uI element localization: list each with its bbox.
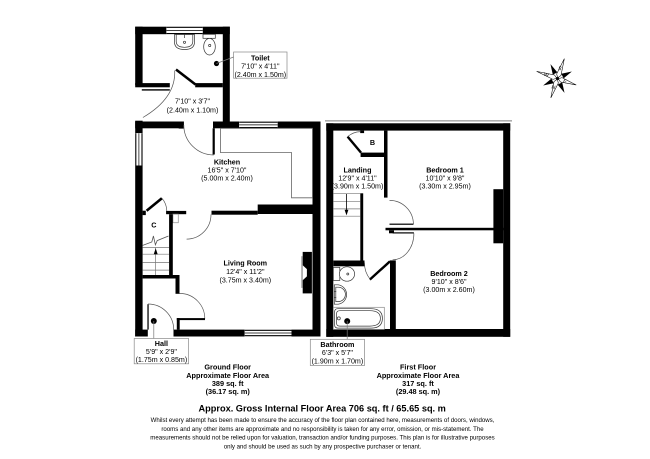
svg-text:Kitchen: Kitchen xyxy=(214,157,240,166)
svg-text:Toilet: Toilet xyxy=(251,54,270,63)
svg-text:(29.48 sq. m): (29.48 sq. m) xyxy=(396,387,441,396)
svg-text:5'9" x 2'9": 5'9" x 2'9" xyxy=(146,348,177,356)
svg-text:(1.90m x 1.70m): (1.90m x 1.70m) xyxy=(312,357,364,365)
svg-text:(2.40m x 1.10m): (2.40m x 1.10m) xyxy=(167,107,219,115)
svg-text:10'10" x 9'8": 10'10" x 9'8" xyxy=(426,174,465,182)
svg-text:16'5" x 7'10": 16'5" x 7'10" xyxy=(208,167,247,175)
svg-text:Bedroom 1: Bedroom 1 xyxy=(426,166,464,175)
svg-text:Living Room: Living Room xyxy=(224,259,268,268)
svg-text:(3.90m x 1.50m): (3.90m x 1.50m) xyxy=(332,182,384,190)
svg-text:rooms and any other items are: rooms and any other items are approximat… xyxy=(161,426,484,433)
svg-text:(2.40m x 1.50m): (2.40m x 1.50m) xyxy=(234,71,286,79)
svg-text:(3.30m x 2.95m): (3.30m x 2.95m) xyxy=(419,182,471,190)
svg-text:Approx. Gross Internal Floor A: Approx. Gross Internal Floor Area 706 sq… xyxy=(199,403,446,413)
svg-text:(3.75m x 3.40m): (3.75m x 3.40m) xyxy=(219,277,271,285)
svg-text:Bedroom 2: Bedroom 2 xyxy=(430,269,468,278)
svg-text:(3.00m x 2.60m): (3.00m x 2.60m) xyxy=(423,286,475,294)
svg-text:7'10" x 3'7": 7'10" x 3'7" xyxy=(175,98,210,106)
svg-text:Hall: Hall xyxy=(155,339,168,348)
svg-text:9'10" x 8'6": 9'10" x 8'6" xyxy=(432,278,467,286)
svg-text:measurements should not be rel: measurements should not be relied upon f… xyxy=(150,435,494,442)
svg-text:(1.75m x 0.85m): (1.75m x 0.85m) xyxy=(136,356,188,364)
svg-text:C: C xyxy=(151,221,156,230)
svg-text:(5.00m x 2.40m): (5.00m x 2.40m) xyxy=(201,175,253,183)
svg-text:(36.17 sq. m): (36.17 sq. m) xyxy=(206,387,251,396)
svg-text:6'3" x 5'7": 6'3" x 5'7" xyxy=(322,349,353,357)
svg-text:7'10" x 4'11": 7'10" x 4'11" xyxy=(241,63,280,71)
svg-text:Landing: Landing xyxy=(344,166,372,175)
svg-text:12'4" x 11'2": 12'4" x 11'2" xyxy=(226,268,265,276)
svg-text:12'9" x 4'11": 12'9" x 4'11" xyxy=(338,174,377,182)
svg-text:Whilst every attempt has been: Whilst every attempt has been made to en… xyxy=(151,417,495,424)
svg-text:B: B xyxy=(370,138,375,147)
svg-text:Bathroom: Bathroom xyxy=(320,340,354,349)
svg-text:only and should be used as suc: only and should be used as such by any p… xyxy=(224,443,422,450)
